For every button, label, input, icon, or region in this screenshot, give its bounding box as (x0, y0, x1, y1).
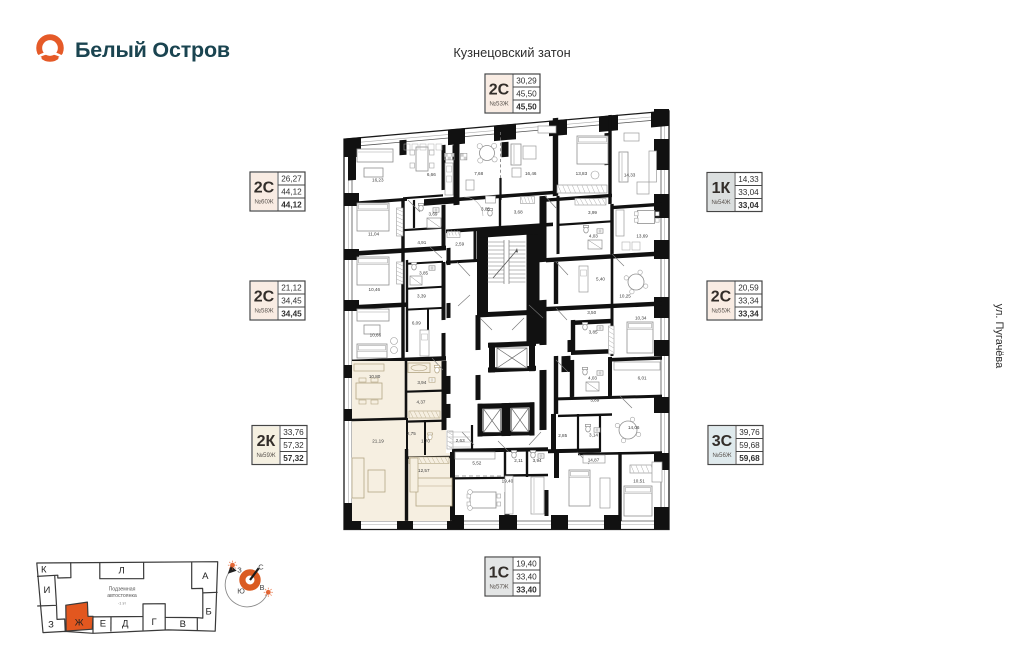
svg-text:3,69: 3,69 (429, 212, 438, 217)
svg-text:19,40: 19,40 (516, 560, 537, 569)
svg-text:33,34: 33,34 (738, 297, 759, 306)
svg-text:30,29: 30,29 (516, 77, 537, 86)
svg-text:10,80: 10,80 (369, 374, 381, 379)
svg-text:26,27: 26,27 (281, 175, 302, 184)
svg-text:№53Ж: №53Ж (489, 101, 509, 108)
svg-text:3С: 3С (712, 433, 733, 450)
svg-text:5,40: 5,40 (596, 277, 605, 282)
svg-text:59,68: 59,68 (739, 454, 760, 463)
svg-text:12,57: 12,57 (418, 468, 430, 473)
svg-text:45,50: 45,50 (516, 103, 537, 112)
svg-text:4,03: 4,03 (589, 234, 598, 239)
svg-text:10,66: 10,66 (370, 333, 382, 338)
svg-text:3,14: 3,14 (589, 432, 598, 437)
svg-text:3,99: 3,99 (588, 210, 597, 215)
svg-text:4,91: 4,91 (417, 240, 426, 245)
svg-text:№56Ж: №56Ж (712, 452, 732, 459)
svg-text:3,68: 3,68 (514, 209, 523, 214)
svg-text:33,34: 33,34 (738, 310, 759, 319)
svg-text:3,94: 3,94 (417, 380, 426, 385)
svg-text:4,37: 4,37 (417, 400, 426, 405)
svg-text:Д: Д (122, 618, 129, 629)
svg-text:45,50: 45,50 (516, 90, 537, 99)
svg-text:№57Ж: №57Ж (489, 584, 509, 591)
svg-text:44,12: 44,12 (281, 188, 302, 197)
svg-text:3,39: 3,39 (417, 293, 426, 298)
svg-text:16,23: 16,23 (372, 178, 384, 183)
svg-text:Л: Л (118, 566, 124, 577)
svg-text:№59Ж: №59Ж (256, 452, 276, 459)
svg-text:В: В (180, 619, 186, 630)
svg-text:13,83: 13,83 (576, 171, 588, 176)
svg-text:1К: 1К (712, 180, 731, 197)
svg-text:2,75: 2,75 (407, 431, 416, 436)
svg-text:59,68: 59,68 (739, 441, 760, 450)
svg-text:2,85: 2,85 (558, 433, 567, 438)
svg-text:С: С (258, 563, 264, 572)
svg-text:2С: 2С (489, 82, 510, 99)
svg-text:10,25: 10,25 (619, 294, 631, 299)
svg-text:6,09: 6,09 (412, 320, 421, 325)
svg-text:Подземная: Подземная (109, 587, 136, 593)
svg-text:№55Ж: №55Ж (711, 308, 731, 315)
svg-text:Ж: Ж (75, 618, 84, 629)
svg-text:2С: 2С (711, 289, 732, 306)
svg-text:14,33: 14,33 (738, 175, 759, 184)
svg-text:3,50: 3,50 (587, 310, 596, 315)
svg-text:Белый Остров: Белый Остров (75, 38, 230, 62)
svg-text:3,85: 3,85 (481, 207, 490, 212)
svg-text:14,06: 14,06 (628, 425, 640, 430)
svg-text:№60Ж: №60Ж (254, 199, 274, 206)
svg-text:10,46: 10,46 (369, 287, 381, 292)
svg-text:№58Ж: №58Ж (254, 308, 274, 315)
svg-text:6,01: 6,01 (638, 376, 647, 381)
svg-text:1,70: 1,70 (421, 438, 430, 443)
svg-text:3,85: 3,85 (419, 271, 428, 276)
svg-text:33,40: 33,40 (516, 573, 537, 582)
svg-text:1С: 1С (489, 565, 510, 582)
svg-text:11,04: 11,04 (368, 232, 380, 237)
svg-text:2С: 2С (254, 180, 275, 197)
svg-text:3,89: 3,89 (590, 398, 599, 403)
svg-text:10,51: 10,51 (633, 478, 645, 483)
svg-text:33,40: 33,40 (516, 586, 537, 595)
svg-text:20,59: 20,59 (738, 284, 759, 293)
svg-text:57,32: 57,32 (283, 454, 304, 463)
svg-text:34,45: 34,45 (281, 297, 302, 306)
svg-text:13,69: 13,69 (636, 234, 648, 239)
svg-text:33,04: 33,04 (738, 188, 759, 197)
svg-text:21,19: 21,19 (372, 438, 384, 443)
svg-text:Ю: Ю (237, 587, 245, 596)
svg-text:К: К (41, 565, 47, 576)
svg-text:14,87: 14,87 (588, 458, 600, 463)
svg-text:14,33: 14,33 (624, 172, 636, 177)
svg-text:2С: 2С (254, 289, 275, 306)
svg-text:39,76: 39,76 (739, 428, 760, 437)
svg-text:21,12: 21,12 (281, 284, 302, 293)
svg-text:33,76: 33,76 (283, 428, 304, 437)
svg-text:57,32: 57,32 (283, 441, 304, 450)
svg-text:2,59: 2,59 (455, 242, 464, 247)
svg-text:З: З (237, 566, 242, 575)
svg-text:19,40: 19,40 (502, 479, 514, 484)
svg-text:44,12: 44,12 (281, 201, 302, 210)
svg-text:6,66: 6,66 (427, 172, 436, 177)
svg-text:4,03: 4,03 (588, 376, 597, 381)
svg-text:-1 эт: -1 эт (118, 602, 126, 606)
svg-text:Кузнецовский затон: Кузнецовский затон (453, 45, 570, 60)
svg-text:Г: Г (152, 617, 157, 628)
svg-text:2,11: 2,11 (514, 458, 523, 463)
svg-text:И: И (43, 585, 50, 596)
svg-text:автостоянка: автостоянка (107, 593, 137, 599)
svg-text:З: З (48, 620, 54, 631)
svg-text:7,68: 7,68 (474, 171, 483, 176)
svg-text:5,52: 5,52 (472, 461, 481, 466)
svg-text:Б: Б (205, 607, 211, 618)
svg-text:ул. Пугачёва: ул. Пугачёва (993, 304, 1005, 369)
svg-text:№54Ж: №54Ж (711, 199, 731, 206)
svg-text:33,04: 33,04 (738, 201, 759, 210)
svg-text:Е: Е (100, 618, 106, 629)
svg-text:3,94: 3,94 (533, 458, 542, 463)
svg-text:2,63: 2,63 (456, 438, 465, 443)
svg-text:В: В (259, 583, 264, 592)
svg-text:2К: 2К (257, 433, 276, 450)
svg-text:А: А (202, 571, 209, 582)
svg-text:10,34: 10,34 (635, 316, 647, 321)
svg-text:34,45: 34,45 (281, 310, 302, 319)
svg-text:3,85: 3,85 (589, 330, 598, 335)
svg-text:16,46: 16,46 (525, 171, 537, 176)
